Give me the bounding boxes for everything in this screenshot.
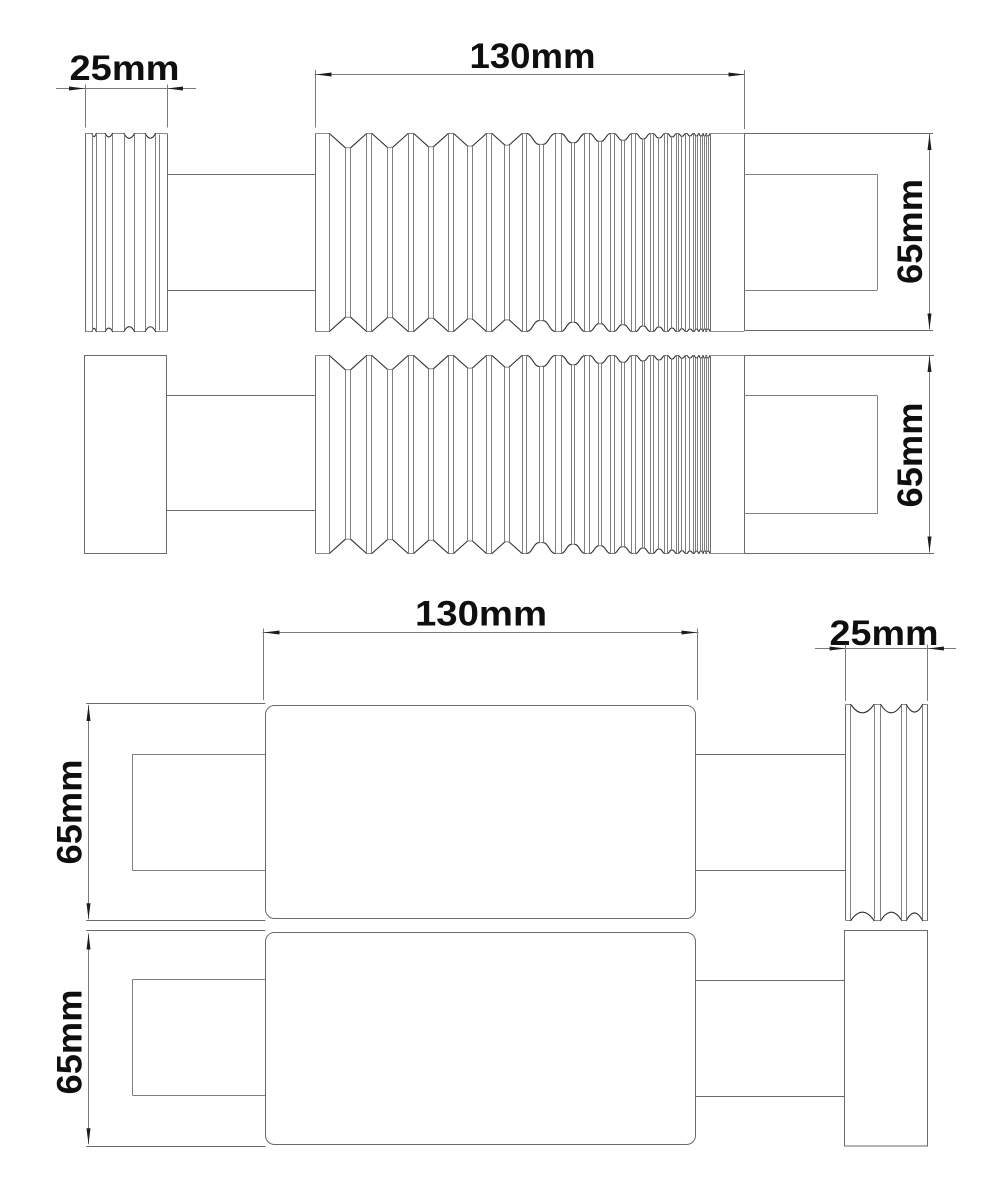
svg-text:130mm: 130mm [470, 37, 596, 76]
svg-text:65mm: 65mm [51, 760, 90, 865]
svg-text:25mm: 25mm [70, 49, 180, 88]
svg-text:65mm: 65mm [891, 403, 930, 508]
svg-text:65mm: 65mm [51, 990, 90, 1095]
svg-text:65mm: 65mm [891, 179, 930, 284]
svg-text:130mm: 130mm [415, 595, 547, 634]
